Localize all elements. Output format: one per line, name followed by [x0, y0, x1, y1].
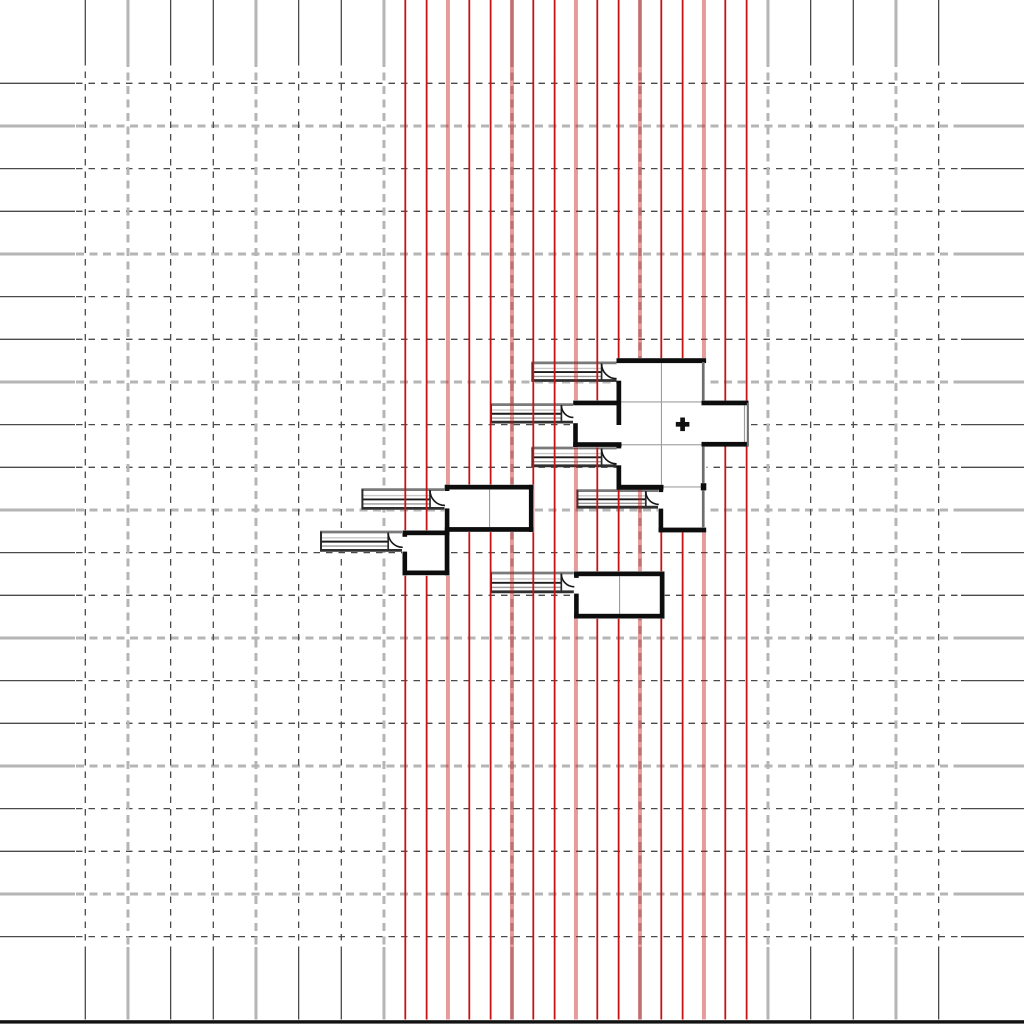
wall-segment [445, 508, 450, 532]
thin-wall-segment [702, 362, 705, 401]
wall-segment [659, 487, 664, 492]
dungeon-floor-plan [0, 0, 1024, 1024]
wall-segment [617, 465, 622, 487]
room-interior-line [621, 401, 702, 402]
wall-segment [445, 485, 450, 491]
wall-segment [529, 485, 534, 532]
thin-wall-segment [702, 490, 705, 528]
bottom-frame-line [0, 1020, 1024, 1023]
wall-segment [617, 358, 707, 363]
wall-segment [403, 552, 408, 576]
room-interior-line [621, 444, 702, 445]
wall-segment [574, 572, 579, 578]
wall-segment [573, 401, 617, 406]
wall-segment [574, 572, 664, 577]
room-interior-line [744, 405, 745, 442]
wall-segment [701, 483, 707, 490]
room-floor [658, 486, 707, 533]
thin-wall-segment [747, 403, 749, 447]
wall-segment [574, 594, 579, 619]
wall-segment [445, 531, 450, 576]
wall-segment [574, 614, 664, 619]
room-interior-line [663, 486, 701, 487]
room-floor [402, 530, 450, 576]
wall-segment [702, 442, 749, 447]
room-floor [701, 401, 749, 447]
wall-segment [573, 442, 621, 447]
corridors-layer [320, 362, 659, 594]
wall-segment [445, 485, 534, 490]
room-interior-line [661, 363, 662, 485]
room-floor [573, 400, 622, 447]
wall-segment [617, 381, 622, 425]
thin-wall-segment [702, 446, 705, 483]
wall-segment [617, 485, 664, 490]
wall-segment [702, 401, 749, 406]
room-interior-line [489, 490, 490, 528]
plan-viewport [0, 0, 1024, 1024]
wall-segment [403, 531, 450, 536]
room-interior-line [619, 576, 620, 614]
wall-segment [403, 571, 450, 576]
wall-segment [445, 527, 534, 532]
wall-segment [659, 528, 707, 533]
frame-layer [0, 1020, 1024, 1023]
wall-segment [660, 572, 665, 619]
wall-segment [403, 531, 408, 537]
